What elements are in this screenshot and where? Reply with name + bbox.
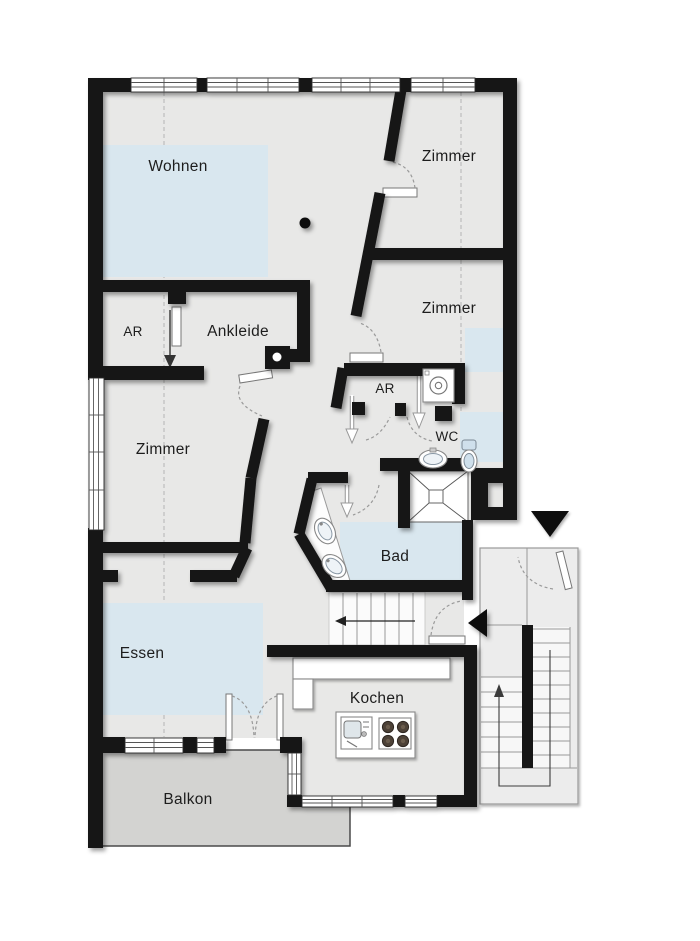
column-icon	[300, 218, 311, 229]
room-label-kochen: Kochen	[350, 690, 404, 707]
floor-plan: Wohnen Zimmer Zimmer AR Ankleide Zimmer …	[0, 0, 700, 941]
building-entrance-arrow-icon	[531, 511, 569, 537]
kitchen-counter-return	[293, 679, 313, 709]
kitchen-sink-icon	[341, 717, 372, 749]
shower-icon	[408, 471, 468, 522]
door-leaf	[383, 188, 417, 197]
entry-door-leaf	[429, 636, 465, 644]
stove-icon	[379, 718, 411, 749]
washing-machine-icon	[423, 369, 454, 402]
room-label-balkon: Balkon	[163, 791, 212, 808]
room-label-zimmer-top: Zimmer	[422, 148, 476, 165]
door-leaf	[350, 353, 383, 362]
door-leaf	[226, 694, 232, 740]
room-label-ar-left: AR	[123, 324, 142, 339]
stairwell	[480, 548, 578, 804]
room-label-ar-right: AR	[375, 381, 394, 396]
room-label-zimmer-right: Zimmer	[422, 300, 476, 317]
apartment-entrance-arrow-icon	[468, 609, 487, 637]
sliding-door-leaf	[172, 307, 181, 346]
floor-plan-canvas: Wohnen Zimmer Zimmer AR Ankleide Zimmer …	[0, 0, 700, 941]
stair-flight-right	[533, 627, 570, 768]
interior-stairs	[329, 592, 425, 645]
room-label-bad: Bad	[381, 548, 409, 565]
highlight-zimmer-right	[465, 328, 503, 372]
room-label-wc: WC	[435, 429, 458, 444]
door-leaf	[277, 694, 283, 740]
room-label-zimmer-left: Zimmer	[136, 441, 190, 458]
room-label-ankleide: Ankleide	[207, 323, 269, 340]
room-label-wohnen: Wohnen	[148, 158, 207, 175]
toilet-icon	[461, 440, 477, 472]
room-label-essen: Essen	[120, 645, 165, 662]
kitchen-counter	[293, 658, 450, 679]
stair-spine-wall	[522, 625, 533, 768]
